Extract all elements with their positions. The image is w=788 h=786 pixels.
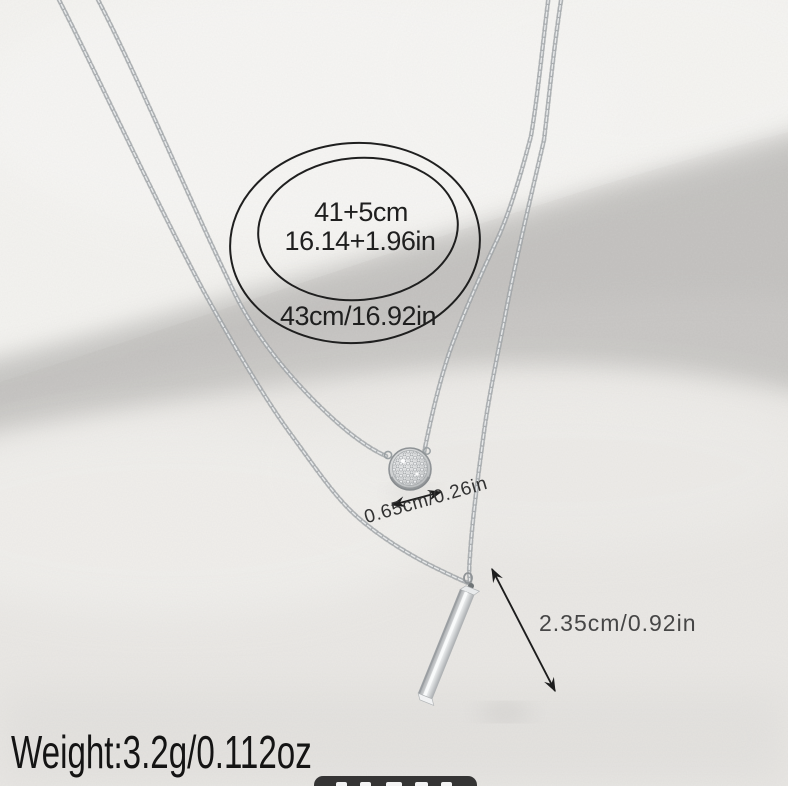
necklace-length-line1: 41+5cm [314,198,408,227]
watermark-glyph [336,782,347,786]
necklace-photo-art [0,0,788,786]
product-photo: 41+5cm 16.14+1.96in 43cm/16.92in 0.65cm/… [0,0,788,786]
watermark-glyph [360,782,371,786]
bar-pendant-size-label: 2.35cm/0.92in [539,610,696,637]
watermark-glyph [386,782,402,786]
watermark-bar [314,776,477,786]
watermark-glyph [415,782,428,786]
weight-label: Weight:3.2g/0.112oz [11,725,312,779]
necklace-length-line2: 16.14+1.96in [285,227,436,256]
watermark-glyph [441,782,452,786]
necklace-length-line3: 43cm/16.92in [280,302,436,331]
